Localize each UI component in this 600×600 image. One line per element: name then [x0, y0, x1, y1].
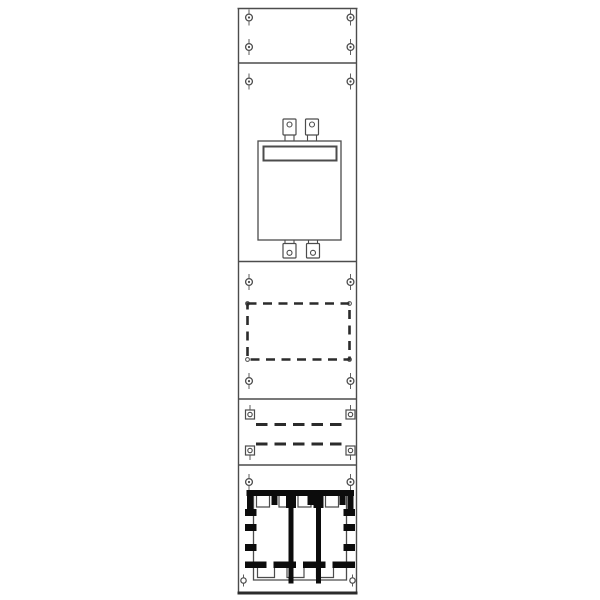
mounting-screw	[347, 274, 354, 290]
mounting-screw	[246, 274, 253, 290]
clip-screw	[311, 250, 316, 255]
mounting-screw	[347, 74, 354, 90]
meter-fixing-clip	[307, 240, 320, 258]
screw-slot	[349, 380, 351, 382]
screw-slot	[248, 16, 250, 18]
meter-fixing-clip	[306, 119, 319, 141]
mounting-screw	[246, 373, 253, 389]
screw-slot	[248, 80, 250, 82]
meter-fixing-clip	[283, 119, 296, 141]
busbar-tooth	[308, 496, 314, 505]
screw-slot	[349, 80, 351, 82]
screw-slot	[349, 16, 351, 18]
terminal-strip-field	[256, 425, 344, 445]
meter-label-window	[264, 147, 337, 161]
busbar-vertical-riser	[316, 491, 321, 584]
mounting-screw	[246, 474, 253, 490]
busbar-end-stub	[247, 496, 253, 509]
busbar-field	[241, 490, 355, 587]
screw-slot	[248, 380, 250, 382]
busbar-top-notch	[257, 496, 270, 507]
busbar-main-bar	[247, 490, 355, 496]
busbar-fixing-screw	[241, 575, 246, 587]
mounting-screws	[246, 10, 356, 491]
busbar-end-stub	[348, 496, 354, 509]
meter-fixing-clip	[283, 240, 296, 258]
busbar-top-notch	[326, 496, 339, 507]
reserved-area-outline	[248, 304, 350, 360]
terminal-screw	[346, 446, 355, 460]
terminal-screw	[246, 405, 255, 419]
busbar-vertical-riser	[289, 491, 294, 584]
terminal-screw	[246, 446, 255, 460]
screw-head	[241, 578, 246, 583]
mounting-screw	[347, 474, 354, 490]
busbar-tooth	[272, 496, 278, 505]
reserved-device-field	[246, 302, 352, 362]
screw-slot	[248, 281, 250, 283]
busbar-side-tooth-left	[245, 524, 257, 531]
mounting-screw	[347, 373, 354, 389]
busbar-side-tooth-left	[245, 544, 257, 551]
clip-screw	[287, 250, 292, 255]
meter-field	[258, 119, 341, 258]
meter-panel-technical-drawing	[0, 0, 600, 600]
screw-head	[350, 578, 355, 583]
busbar-bottom-notch	[258, 567, 275, 578]
mounting-screw	[246, 74, 253, 90]
diagram-canvas	[0, 0, 600, 600]
terminal-screw	[346, 405, 355, 419]
screw-slot	[349, 46, 351, 48]
busbar-fixing-screw	[350, 575, 355, 587]
clip-screw	[310, 122, 315, 127]
corner-screw	[246, 358, 250, 362]
busbar-bottom-segment	[303, 562, 326, 569]
busbar-side-tooth-right	[344, 544, 356, 551]
screw-body	[246, 446, 255, 455]
mounting-screw	[246, 10, 253, 26]
screw-body	[246, 410, 255, 419]
screw-slot	[248, 46, 250, 48]
busbar-tooth	[340, 496, 346, 505]
screw-body	[346, 410, 355, 419]
busbar-side-tooth-right	[344, 509, 356, 516]
panel-bottom-edge	[238, 592, 358, 595]
screw-slot	[248, 481, 250, 483]
busbar-side-tooth-right	[344, 524, 356, 531]
mounting-screw	[246, 39, 253, 55]
screw-body	[346, 446, 355, 455]
screw-slot	[349, 481, 351, 483]
clip-screw	[287, 122, 292, 127]
busbar-bottom-segment	[245, 562, 267, 569]
mounting-screw	[347, 39, 354, 55]
mounting-screw	[347, 10, 354, 26]
busbar-bottom-segment	[333, 562, 356, 569]
busbar-side-tooth-left	[245, 509, 257, 516]
screw-slot	[349, 281, 351, 283]
